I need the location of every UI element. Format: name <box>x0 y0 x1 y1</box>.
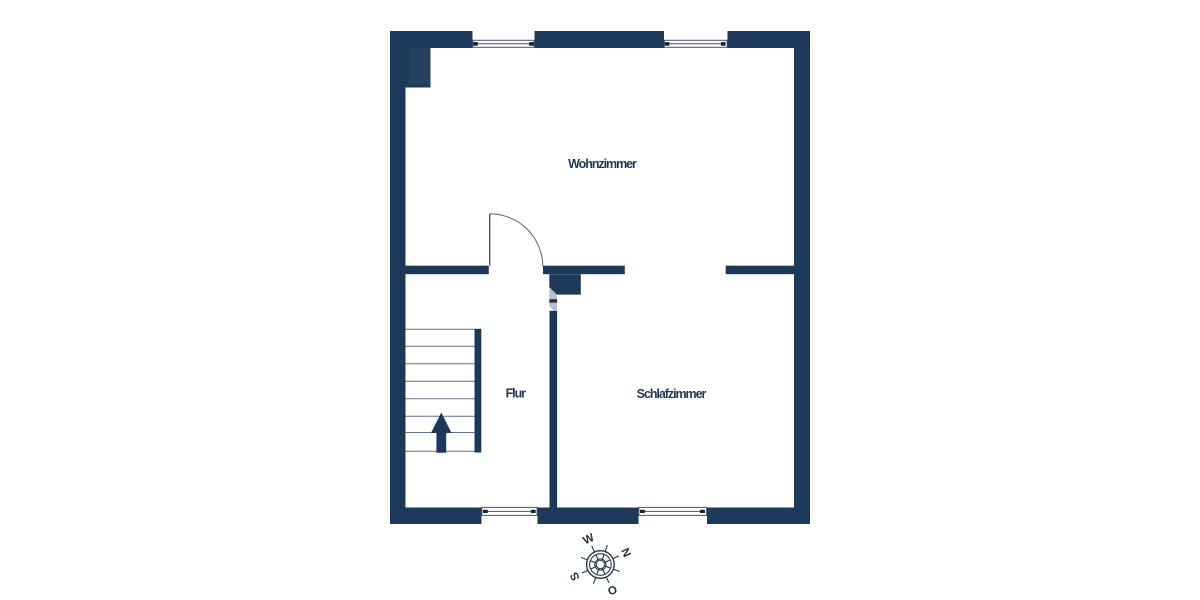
svg-text:Schlafzimmer: Schlafzimmer <box>637 387 707 401</box>
svg-text:Flur: Flur <box>506 387 527 401</box>
svg-text:Wohnzimmer: Wohnzimmer <box>568 157 637 171</box>
